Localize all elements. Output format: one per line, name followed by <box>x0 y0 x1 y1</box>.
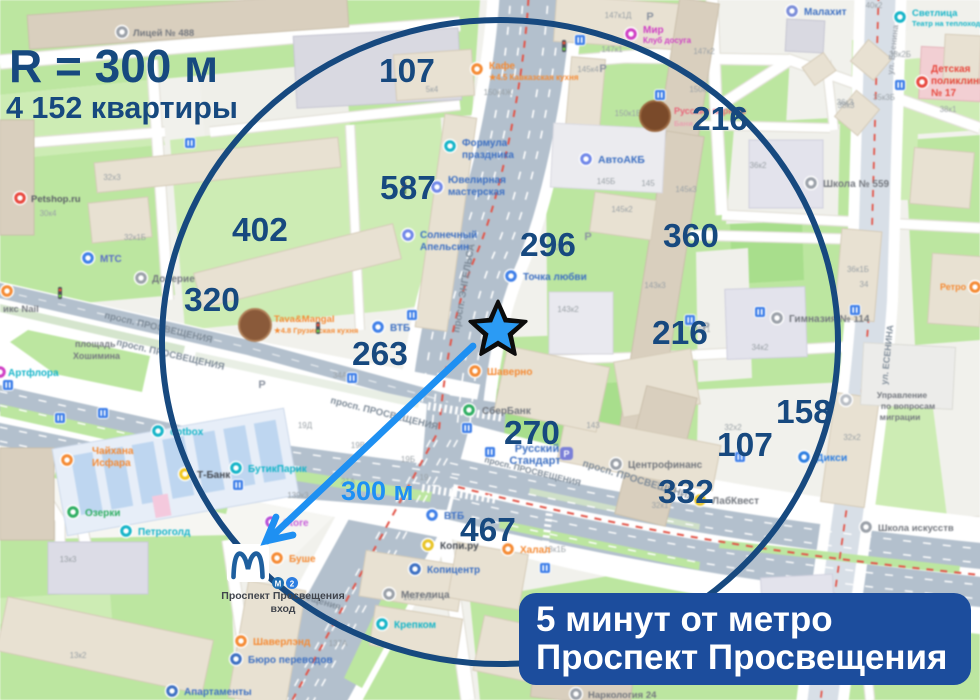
svg-text:38к2Б: 38к2Б <box>889 50 911 59</box>
svg-text:Апартаменты: Апартаменты <box>184 687 252 698</box>
svg-text:263: 263 <box>352 336 408 373</box>
svg-text:Буше: Буше <box>289 554 316 565</box>
svg-text:Управление: Управление <box>877 390 928 400</box>
svg-text:587: 587 <box>380 170 436 207</box>
svg-text:36к1Б: 36к1Б <box>847 265 869 274</box>
svg-text:147к2: 147к2 <box>693 47 715 56</box>
svg-text:13к3: 13к3 <box>60 555 77 564</box>
svg-text:143к3: 143к3 <box>644 281 666 290</box>
svg-text:Tava&Mangal: Tava&Mangal <box>274 314 335 325</box>
svg-text:Метелица: Метелица <box>401 590 450 601</box>
svg-text:Кафе: Кафе <box>489 60 515 72</box>
svg-text:Р: Р <box>599 63 606 75</box>
svg-text:Ретро: Ретро <box>940 282 967 292</box>
svg-text:34А: 34А <box>333 371 348 380</box>
svg-text:Светлица: Светлица <box>912 8 958 19</box>
svg-text:332: 332 <box>658 474 714 511</box>
svg-text:216: 216 <box>652 315 708 352</box>
svg-text:19: 19 <box>420 473 429 482</box>
svg-text:Театр на теплоходе: Театр на теплоходе <box>912 19 980 28</box>
svg-text:Апельсин: Апельсин <box>420 242 469 253</box>
svg-text:38к1: 38к1 <box>940 105 957 114</box>
svg-text:Точка любви: Точка любви <box>523 271 587 283</box>
svg-text:145к4: 145к4 <box>577 65 599 74</box>
svg-text:миграции: миграции <box>880 412 921 422</box>
svg-text:107: 107 <box>379 53 435 90</box>
svg-text:по вопросам: по вопросам <box>881 401 935 411</box>
svg-text:Дикси: Дикси <box>816 452 847 464</box>
svg-text:АвтоАКБ: АвтоАКБ <box>598 154 645 166</box>
svg-text:Стандарт: Стандарт <box>509 455 561 467</box>
svg-text:поликлиника: поликлиника <box>931 76 980 87</box>
svg-text:145к3: 145к3 <box>675 185 697 194</box>
svg-text:158: 158 <box>776 394 832 431</box>
svg-text:32к1Б: 32к1Б <box>124 233 146 242</box>
svg-text:5 минут от метро: 5 минут от метро <box>536 600 833 639</box>
svg-text:467: 467 <box>460 512 516 549</box>
svg-text:35к3Б: 35к3Б <box>873 93 895 102</box>
svg-text:Центрофинанс: Центрофинанс <box>628 459 703 471</box>
svg-text:★4.5 Кавказская кухня: ★4.5 Кавказская кухня <box>489 73 579 82</box>
svg-text:БутикПарик: БутикПарик <box>248 464 308 475</box>
svg-text:Озерки: Озерки <box>85 508 120 519</box>
svg-text:270: 270 <box>504 415 560 452</box>
svg-text:Артфлора: Артфлора <box>8 367 59 379</box>
svg-text:Копицентр: Копицентр <box>427 565 480 576</box>
svg-text:R = 300 м: R = 300 м <box>9 40 218 92</box>
svg-text:Чайхана: Чайхана <box>92 446 134 457</box>
svg-text:Крепком: Крепком <box>394 620 436 631</box>
svg-text:145: 145 <box>641 179 655 188</box>
svg-text:Формула: Формула <box>462 138 508 149</box>
svg-text:ЛабКвест: ЛабКвест <box>712 495 759 507</box>
svg-text:34: 34 <box>860 280 869 289</box>
svg-text:Халал: Халал <box>520 545 551 556</box>
svg-text:143к2: 143к2 <box>557 305 579 314</box>
svg-text:Р: Р <box>563 449 569 459</box>
svg-text:Petshop.ru: Petshop.ru <box>31 194 81 205</box>
svg-text:143: 143 <box>586 421 600 430</box>
svg-text:300 м: 300 м <box>341 476 414 506</box>
svg-text:137А: 137А <box>329 639 348 648</box>
svg-text:36к3: 36к3 <box>837 98 854 107</box>
svg-text:Солнечный: Солнечный <box>420 230 477 241</box>
svg-text:150к4Ж: 150к4Ж <box>484 88 513 97</box>
svg-text:М: М <box>275 580 282 589</box>
svg-text:Школа № 559: Школа № 559 <box>823 179 890 190</box>
svg-text:Детская: Детская <box>931 64 971 75</box>
svg-text:147к1: 147к1 <box>601 45 623 54</box>
svg-text:Наркология 24: Наркология 24 <box>588 690 657 700</box>
svg-text:139к3: 139к3 <box>287 491 309 500</box>
svg-text:Петроголд: Петроголд <box>138 527 191 538</box>
svg-text:32х2: 32х2 <box>843 433 861 442</box>
svg-text:Т-Банк: Т-Банк <box>197 470 231 481</box>
svg-text:Хошимина: Хошимина <box>73 351 121 361</box>
svg-text:Малахит: Малахит <box>804 7 847 18</box>
svg-text:30к4: 30к4 <box>40 209 57 218</box>
svg-text:Лицей № 488: Лицей № 488 <box>133 28 194 39</box>
svg-text:150к1В: 150к1В <box>615 109 642 118</box>
svg-text:Школа искусств: Школа искусств <box>878 523 954 534</box>
svg-text:107: 107 <box>717 427 773 464</box>
svg-text:икс Nail: икс Nail <box>3 304 39 315</box>
svg-text:147к1Д: 147к1Д <box>605 11 632 20</box>
svg-text:Р: Р <box>646 11 653 23</box>
svg-text:19Б: 19Б <box>401 455 415 464</box>
svg-text:145к2: 145к2 <box>611 205 633 214</box>
svg-text:2: 2 <box>290 580 295 589</box>
svg-text:Мир: Мир <box>643 25 664 36</box>
svg-text:32х3: 32х3 <box>103 173 121 182</box>
svg-text:Р: Р <box>258 379 265 391</box>
svg-text:216: 216 <box>692 101 748 138</box>
svg-text:Бани: Бани <box>674 119 693 128</box>
svg-text:Проспект Просвещения: Проспект Просвещения <box>221 590 344 602</box>
svg-text:Р: Р <box>584 231 591 243</box>
svg-text:34к2: 34к2 <box>752 343 769 352</box>
svg-text:Клуб досуга: Клуб досуга <box>643 36 692 45</box>
svg-text:19Д: 19Д <box>298 421 313 430</box>
svg-text:145Б: 145Б <box>597 177 616 186</box>
svg-text:Бюро переводов: Бюро переводов <box>248 655 333 666</box>
svg-text:40к2: 40к2 <box>866 1 883 10</box>
svg-text:36к2: 36к2 <box>750 161 767 170</box>
svg-text:402: 402 <box>232 212 288 249</box>
svg-text:Шаверлэнд: Шаверлэнд <box>253 637 311 648</box>
svg-text:МТС: МТС <box>100 254 122 265</box>
svg-text:4 152 квартиры: 4 152 квартиры <box>6 91 238 125</box>
svg-text:праздника: праздника <box>462 150 514 161</box>
svg-text:ВТБ: ВТБ <box>390 323 410 334</box>
svg-text:Проспект Просвещения: Проспект Просвещения <box>536 638 947 677</box>
svg-text:№ 17: № 17 <box>931 88 956 99</box>
svg-text:320: 320 <box>184 282 240 319</box>
svg-text:296: 296 <box>520 227 576 264</box>
svg-text:360: 360 <box>663 218 719 255</box>
svg-text:мастерская: мастерская <box>448 187 505 198</box>
svg-text:Исфара: Исфара <box>92 457 131 469</box>
svg-text:Ювелирная: Ювелирная <box>448 175 506 186</box>
svg-text:Шаверно: Шаверно <box>487 367 532 378</box>
svg-text:площадь: площадь <box>75 339 116 349</box>
svg-text:вход: вход <box>271 603 296 615</box>
svg-text:13к2: 13к2 <box>70 651 87 660</box>
